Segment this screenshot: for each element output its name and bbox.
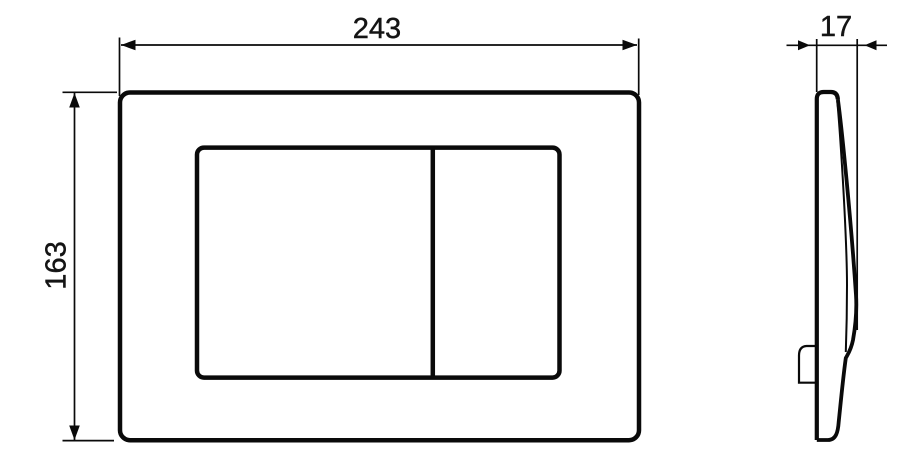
svg-text:17: 17: [820, 11, 852, 43]
svg-text:243: 243: [353, 13, 401, 45]
svg-text:163: 163: [40, 241, 72, 289]
